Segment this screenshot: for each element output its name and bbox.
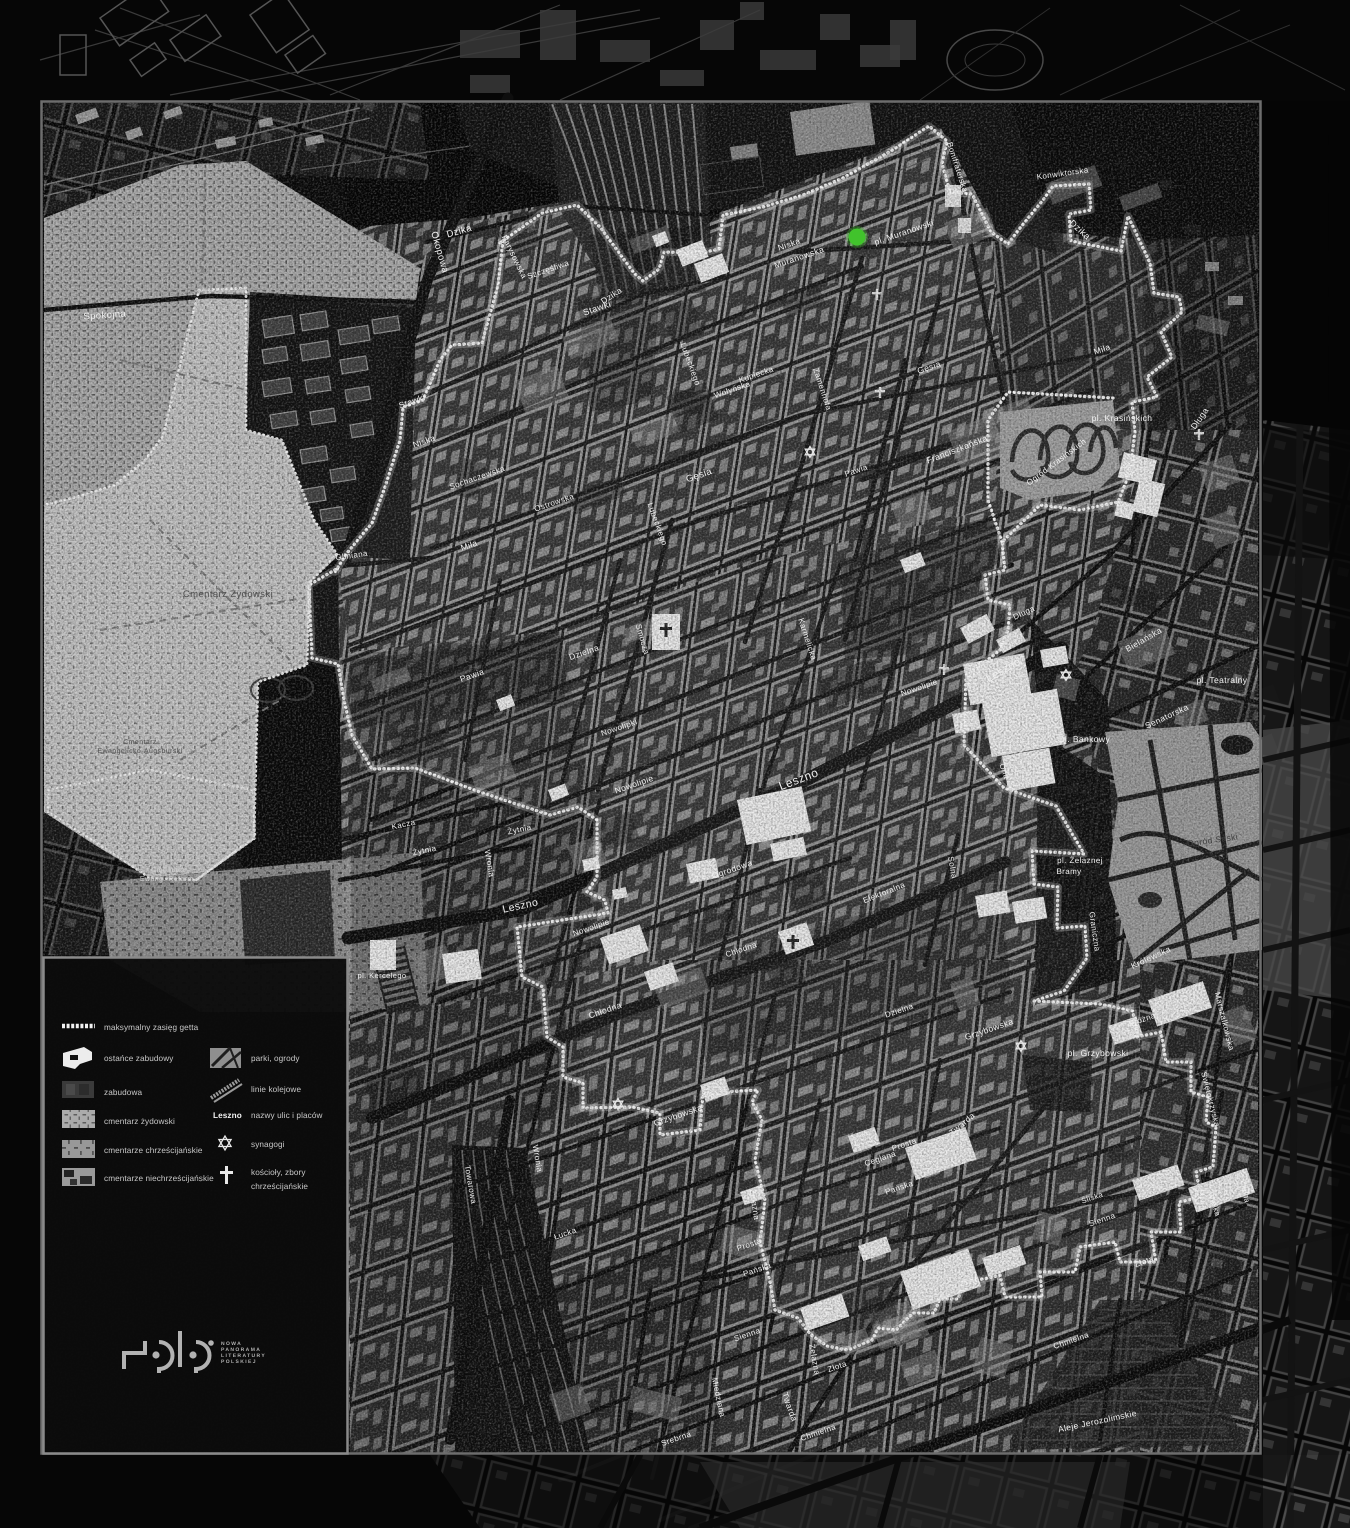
svg-text:pl. Krasińskich: pl. Krasińskich [1092, 413, 1153, 423]
svg-text:cmentarze chrześcijańskie: cmentarze chrześcijańskie [104, 1146, 203, 1155]
svg-text:ostańce zabudowy: ostańce zabudowy [104, 1054, 174, 1063]
svg-text:pl. Kercelego: pl. Kercelego [358, 971, 407, 980]
svg-text:POLSKIEJ: POLSKIEJ [221, 1359, 257, 1365]
svg-text:kościoły, zbory: kościoły, zbory [251, 1168, 306, 1177]
svg-text:Leszno: Leszno [213, 1111, 242, 1120]
svg-text:cmentarz żydowski: cmentarz żydowski [104, 1117, 175, 1126]
svg-text:Ewang.-Reform.: Ewang.-Reform. [140, 875, 196, 883]
svg-text:Cmentarz Żydowski: Cmentarz Żydowski [183, 588, 273, 600]
svg-text:Ewangelicko-Augsburski: Ewangelicko-Augsburski [97, 747, 182, 755]
svg-text:Cmentarz: Cmentarz [123, 739, 157, 746]
svg-text:cmentarze niechrześcijańskie: cmentarze niechrześcijańskie [104, 1174, 214, 1183]
svg-text:Cmentarz: Cmentarz [151, 867, 185, 874]
svg-text:maksymalny zasięg getta: maksymalny zasięg getta [104, 1023, 199, 1032]
svg-text:Bramy: Bramy [1056, 867, 1081, 876]
svg-text:pl. Grzybowski: pl. Grzybowski [1068, 1048, 1129, 1058]
svg-text:pl. Żelaznej: pl. Żelaznej [1057, 856, 1103, 865]
svg-text:linie kolejowe: linie kolejowe [251, 1085, 301, 1094]
svg-text:synagogi: synagogi [251, 1140, 285, 1149]
svg-text:zabudowa: zabudowa [104, 1088, 142, 1097]
svg-text:chrześcijańskie: chrześcijańskie [251, 1182, 308, 1191]
svg-text:pl. Bankowy: pl. Bankowy [1060, 734, 1111, 744]
svg-text:nazwy ulic i placów: nazwy ulic i placów [251, 1111, 323, 1120]
svg-text:pl. Teatralny: pl. Teatralny [1197, 675, 1248, 685]
svg-text:parki, ogrody: parki, ogrody [251, 1054, 300, 1063]
